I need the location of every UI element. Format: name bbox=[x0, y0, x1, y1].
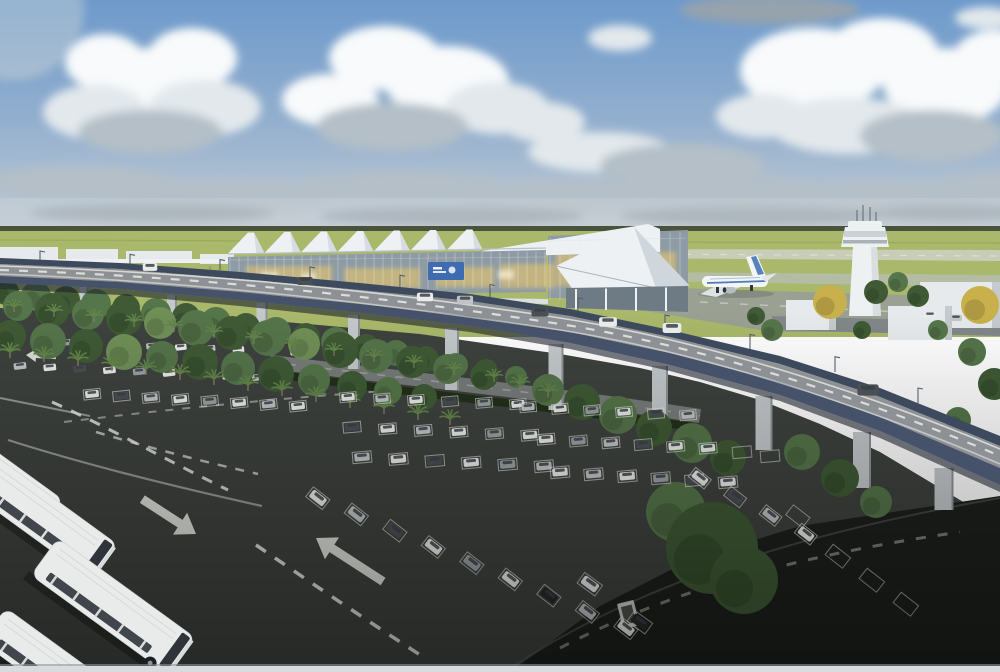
cloud bbox=[316, 103, 468, 151]
frame-shadow bbox=[0, 664, 1000, 666]
car bbox=[417, 293, 433, 302]
cloud bbox=[78, 110, 222, 154]
airport-rendering bbox=[0, 0, 1000, 672]
car bbox=[297, 277, 312, 285]
rendering-stage bbox=[0, 0, 1000, 672]
car bbox=[457, 296, 473, 305]
cloud bbox=[716, 94, 808, 138]
car bbox=[950, 315, 962, 321]
car bbox=[857, 384, 878, 395]
car bbox=[143, 263, 157, 271]
cloud bbox=[860, 110, 1000, 162]
car bbox=[599, 317, 617, 326]
cloud bbox=[147, 28, 237, 88]
car bbox=[663, 323, 682, 333]
cloud bbox=[65, 34, 145, 90]
car bbox=[532, 308, 549, 317]
window-edge-strip bbox=[0, 666, 1000, 672]
cloud bbox=[588, 25, 652, 51]
car bbox=[924, 312, 936, 318]
pavilion-glass bbox=[566, 286, 688, 312]
